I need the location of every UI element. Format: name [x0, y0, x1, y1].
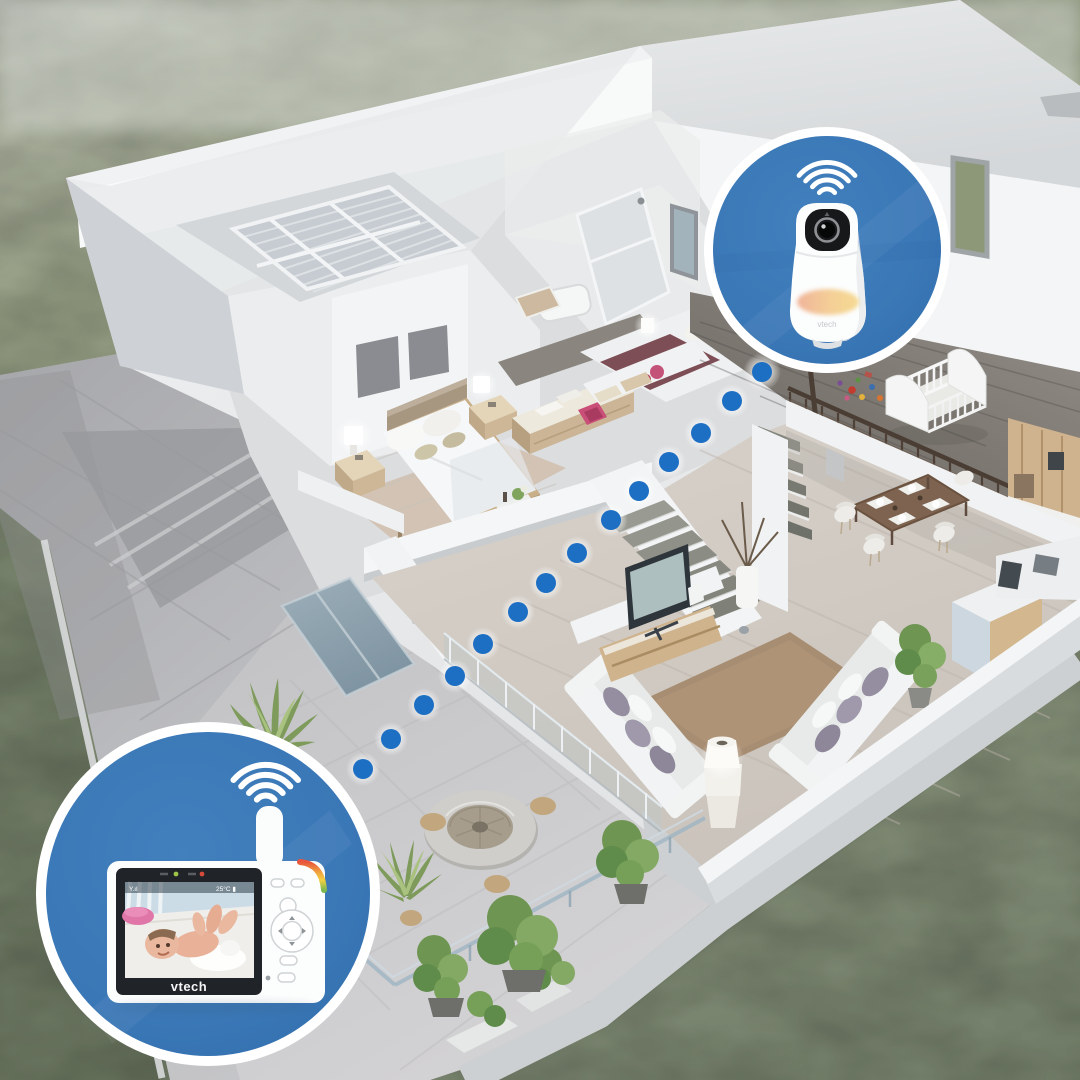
svg-text:vtech: vtech [171, 979, 207, 994]
svg-text:vtech: vtech [817, 320, 836, 329]
svg-text:Y.ıl: Y.ıl [129, 886, 138, 893]
svg-text:25°C ▮: 25°C ▮ [216, 885, 236, 893]
